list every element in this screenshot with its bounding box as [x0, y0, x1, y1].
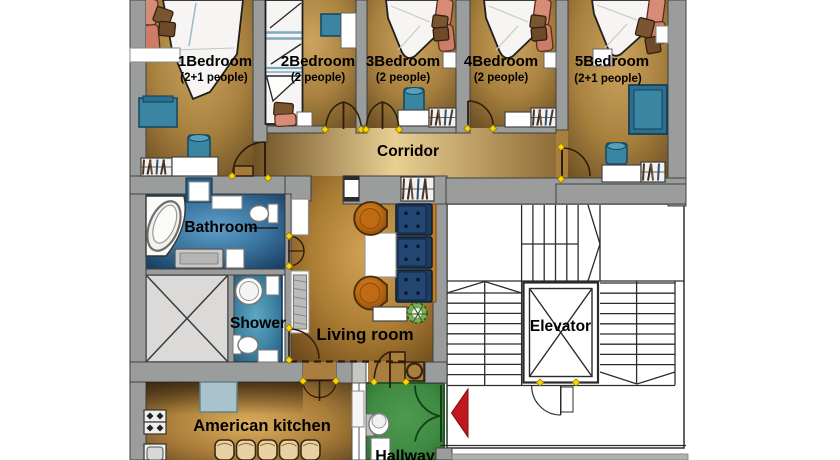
svg-text:Shower: Shower — [230, 315, 286, 332]
svg-text:American kitchen: American kitchen — [193, 417, 331, 435]
svg-text:(2 people): (2 people) — [474, 72, 528, 84]
svg-text:Bathroom: Bathroom — [184, 219, 257, 236]
svg-text:2Bedroom: 2Bedroom — [281, 53, 355, 70]
svg-text:(2 people): (2 people) — [376, 72, 430, 84]
svg-text:(2+1 people): (2+1 people) — [180, 72, 248, 84]
svg-text:5Bedroom: 5Bedroom — [575, 53, 649, 70]
svg-text:Living room: Living room — [316, 325, 413, 344]
svg-text:3Bedroom: 3Bedroom — [366, 53, 440, 70]
svg-text:Hallway: Hallway — [375, 448, 435, 460]
svg-text:(2 people): (2 people) — [291, 72, 345, 84]
svg-text:Elevator: Elevator — [530, 318, 591, 335]
svg-text:(2+1 people): (2+1 people) — [574, 73, 642, 85]
svg-text:Corridor: Corridor — [377, 143, 439, 160]
svg-text:1Bedroom: 1Bedroom — [178, 53, 252, 70]
svg-text:4Bedroom: 4Bedroom — [464, 53, 538, 70]
